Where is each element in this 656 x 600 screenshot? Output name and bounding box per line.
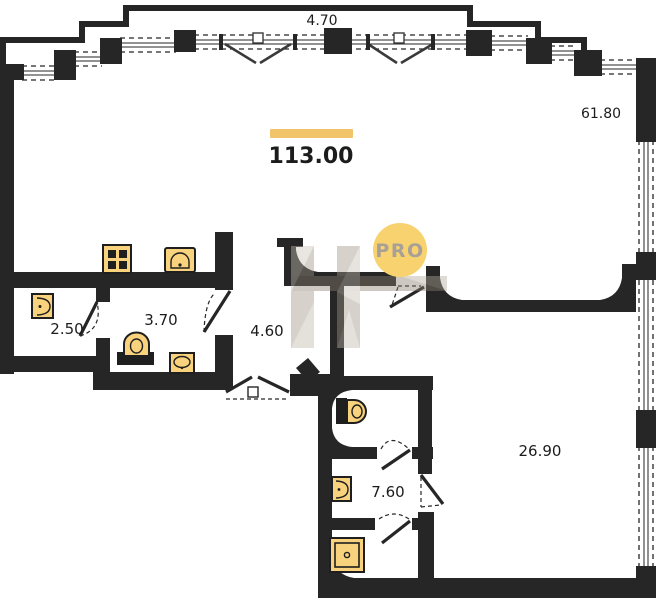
- shower-tray-icon: [330, 538, 364, 572]
- wall-bath-bottom: [93, 372, 225, 390]
- bath2-basin-icon: [332, 477, 351, 501]
- room-label-bathroom: 3.70: [144, 311, 177, 329]
- window-band-right-2: [550, 46, 576, 60]
- wall-left-outer: [0, 66, 14, 374]
- hand-basin-icon: [170, 353, 194, 373]
- wall-wc-divider-left: [330, 447, 377, 459]
- wall-shower-divider-left: [332, 518, 375, 530]
- wall-bath-divider-upper: [215, 232, 233, 290]
- pier: [100, 38, 122, 64]
- pier: [324, 28, 352, 54]
- door-shower-room: [379, 514, 410, 543]
- wall-bottom-outer: [318, 578, 656, 598]
- dim-top-width: 4.70: [306, 13, 337, 29]
- wall-fillet: [600, 278, 622, 300]
- door-bath2-to-bedroom: [421, 475, 443, 507]
- jamb: [366, 34, 370, 50]
- pier: [174, 30, 196, 52]
- pier: [54, 50, 76, 80]
- jamb: [431, 34, 435, 50]
- window-right-middle: [639, 280, 653, 412]
- wall-storage-bottom: [0, 356, 107, 372]
- room-label-bedroom: 26.90: [519, 442, 562, 460]
- pier: [6, 64, 24, 80]
- toilet-icon: [117, 333, 154, 366]
- wall-bedroom-tab-right: [622, 264, 636, 312]
- total-area-accent-bar: [270, 129, 353, 138]
- total-area-label: 113.00: [269, 144, 354, 169]
- wall-right-pier-2: [636, 410, 656, 448]
- dim-living-area: 61.80: [581, 106, 621, 122]
- pier: [574, 50, 602, 76]
- jamb: [293, 34, 297, 50]
- washbasin-icon: [32, 294, 53, 318]
- window-right-lower: [639, 446, 653, 568]
- room-label-bath2: 7.60: [371, 483, 404, 501]
- wall-right-pier-1: [636, 252, 656, 280]
- wc-toilet-icon: [336, 398, 366, 424]
- window-right-upper: [639, 140, 653, 254]
- wall-right-top: [636, 58, 656, 142]
- stove-icon: [103, 245, 131, 273]
- fixtures: [32, 245, 366, 572]
- room-label-hallway: 4.60: [250, 322, 283, 340]
- pier: [526, 38, 552, 64]
- wall-bath2-right-upper: [418, 390, 432, 474]
- labels: 4.70 61.80 113.00 2.50 3.70 4.60 7.60 26…: [50, 13, 621, 501]
- wall-wc-top: [318, 376, 433, 390]
- balcony-door-left: [225, 33, 291, 63]
- window-band-right-3: [600, 60, 638, 74]
- wall-storage-divider-upper: [96, 288, 110, 302]
- floor-plan: PRO 4.70 61.80 113.00 2.50 3.70 4.60 7.6…: [0, 0, 656, 600]
- room-label-storage: 2.50: [50, 320, 83, 338]
- wall-shower-divider-right: [412, 518, 434, 530]
- pier: [466, 30, 492, 56]
- window-band-right-1: [490, 36, 528, 50]
- window-band-left-1: [22, 66, 58, 80]
- wall-fillet: [332, 428, 352, 447]
- door-bathroom: [204, 291, 230, 332]
- kitchen-sink-icon: [165, 248, 195, 272]
- wall-bedroom-top: [426, 300, 636, 312]
- wall-kitchen-divider: [0, 272, 233, 288]
- pro-badge-label: PRO: [375, 240, 424, 262]
- balcony-door-right: [368, 33, 433, 63]
- door-wc: [381, 441, 410, 470]
- window-band-left-2: [74, 52, 102, 66]
- jamb: [219, 34, 223, 50]
- floor-plan-page: PRO 4.70 61.80 113.00 2.50 3.70 4.60 7.6…: [0, 0, 656, 600]
- window-band-left-3: [120, 38, 176, 52]
- entrance-door: [226, 377, 289, 399]
- pro-badge: PRO: [373, 223, 427, 277]
